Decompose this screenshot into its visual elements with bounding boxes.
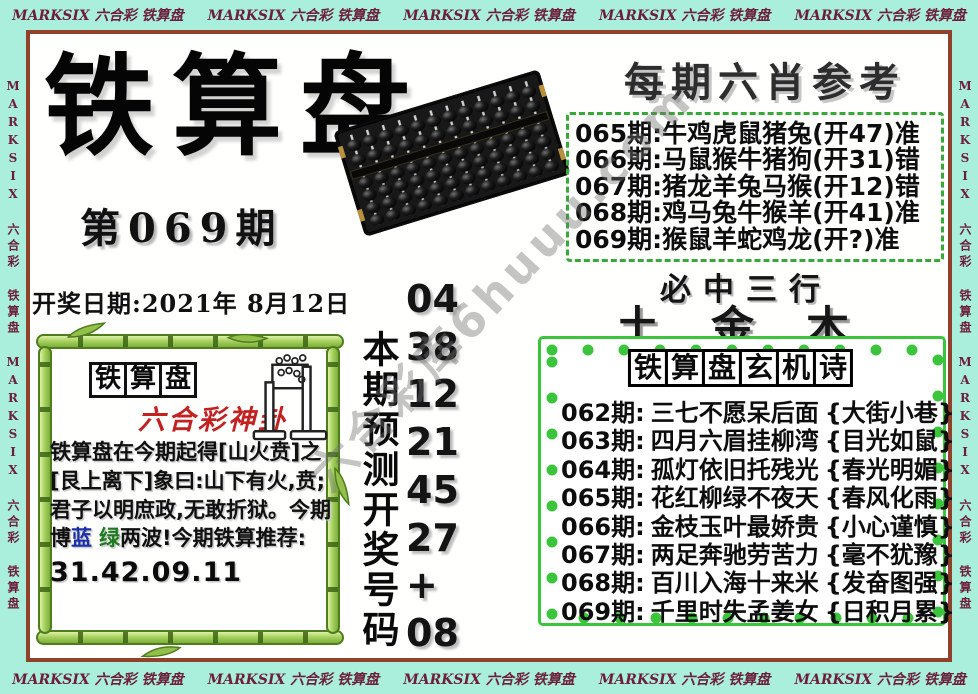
six-xiao-row: 065期:牛鸡虎鼠猪兔(开47)准 <box>575 121 935 147</box>
poem-title-char: 盘 <box>702 349 742 387</box>
banner-text: MARKSIX 六合彩 铁算盘 <box>403 5 574 25</box>
banner-text: MARKSIX 六合彩 铁算盘 <box>958 79 972 337</box>
draw-date: 开奖日期:2021年 8月12日 <box>32 284 350 319</box>
predicted-number: 38 <box>406 328 478 366</box>
green-wave-word: 绿 <box>99 526 120 550</box>
poem-hint: {发奋图强} <box>825 569 955 597</box>
standing-abacus-icon <box>246 348 334 448</box>
poem-title-char: 诗 <box>813 349 853 387</box>
predicted-number: 12 <box>406 375 478 413</box>
banner-text: MARKSIX 六合彩 铁算盘 <box>794 669 965 689</box>
six-xiao-row: 067期:猪龙羊兔马猴(开12)错 <box>575 174 935 200</box>
poem-row: 062期: 三七不愿呆后面 {大街小巷} <box>561 399 927 427</box>
banner-text: MARKSIX 六合彩 铁算盘 <box>599 669 770 689</box>
poem-rows: 062期: 三七不愿呆后面 {大街小巷} 063期: 四月六眉挂柳湾 {目光如鼠… <box>561 399 927 626</box>
poem-row: 069期: 千里时失孟姜女 {日积月累} <box>561 598 927 626</box>
six-xiao-row: 068期:鸡马兔牛猴羊(开41)准 <box>575 200 935 226</box>
poem-title-char: 算 <box>665 349 705 387</box>
bamboo-title-char: 铁 <box>89 362 127 398</box>
predicted-number: 21 <box>406 423 478 461</box>
banner-text: MARKSIX 六合彩 铁算盘 <box>794 5 965 25</box>
poem-verse: 三七不愿呆后面 <box>651 399 819 427</box>
plus-sign: + <box>406 566 478 604</box>
bamboo-box-body: 铁算盘在今期起得[山火贲]之[艮上离下]象曰:山下有火,贲;君子以明庶政,无敢折… <box>50 438 338 592</box>
bamboo-leaf-icon <box>139 639 182 660</box>
poem-period: 065期: <box>561 484 645 512</box>
poem-period: 062期: <box>561 399 645 427</box>
predicted-number: 04 <box>406 280 478 318</box>
poem-hint: {大街小巷} <box>825 399 955 427</box>
predicted-number: 27 <box>406 519 478 557</box>
hexagram-text: 两波!今期铁算推荐: <box>120 526 306 550</box>
poem-row: 067期: 两足奔驰劳苦力 {毫不犹豫} <box>561 541 927 569</box>
poem-period: 069期: <box>561 598 645 626</box>
banner-text: MARKSIX 六合彩 铁算盘 <box>208 5 379 25</box>
poem-row: 063期: 四月六眉挂柳湾 {目光如鼠} <box>561 427 927 455</box>
poem-period: 066期: <box>561 513 645 541</box>
lottery-flyer-page: MARKSIX 六合彩 铁算盘 MARKSIX 六合彩 铁算盘 MARKSIX … <box>0 0 978 694</box>
poem-title-char: 铁 <box>628 349 668 387</box>
bamboo-frame-bottom <box>36 630 344 645</box>
poem-hint: {春光明媚} <box>825 456 955 484</box>
banner-left: MARKSIX 六合彩 铁算盘 MARKSIX 六合彩 铁算盘 <box>0 30 26 662</box>
banner-right: MARKSIX 六合彩 铁算盘 MARKSIX 六合彩 铁算盘 <box>952 30 978 662</box>
six-xiao-row: 066期:马鼠猴牛猪狗(开31)错 <box>575 147 935 173</box>
prediction-label: 本期预测开奖号码 <box>350 330 404 656</box>
banner-text: MARKSIX 六合彩 铁算盘 <box>599 5 770 25</box>
poem-row: 068期: 百川入海十来米 {发奋图强} <box>561 569 927 597</box>
bamboo-box-title: 铁 算 盘 <box>92 362 197 398</box>
poem-hint: {小心谨慎} <box>825 513 955 541</box>
six-xiao-box: 065期:牛鸡虎鼠猪兔(开47)准 066期:马鼠猴牛猪狗(开31)错 067期… <box>566 112 944 262</box>
poem-hint: {目光如鼠} <box>825 427 955 455</box>
poem-verse: 孤灯依旧托残光 <box>651 456 819 484</box>
poem-verse: 花红柳绿不夜天 <box>651 484 819 512</box>
poem-period: 068期: <box>561 569 645 597</box>
poem-verse: 百川入海十来米 <box>651 569 819 597</box>
poem-verse: 两足奔驰劳苦力 <box>651 541 819 569</box>
recommended-numbers: 31.42.09.11 <box>50 555 338 592</box>
poem-row: 065期: 花红柳绿不夜天 {春风化雨} <box>561 484 927 512</box>
poem-title-char: 机 <box>776 349 816 387</box>
issue-number: 第069期 <box>80 196 284 254</box>
banner-text: MARKSIX 六合彩 铁算盘 <box>958 355 972 613</box>
poem-period: 064期: <box>561 456 645 484</box>
poem-verse: 金枝玉叶最娇贵 <box>651 513 819 541</box>
mystery-poem-title: 铁 算 盘 玄 机 诗 <box>631 349 853 387</box>
poem-row: 064期: 孤灯依旧托残光 {春光明媚} <box>561 456 927 484</box>
banner-text: MARKSIX 六合彩 铁算盘 <box>208 669 379 689</box>
poem-period: 067期: <box>561 541 645 569</box>
poem-hint: {毫不犹豫} <box>825 541 955 569</box>
mystery-poem-box: 铁 算 盘 玄 机 诗 062期: 三七不愿呆后面 {大街小巷} 063期: 四… <box>538 336 946 626</box>
six-xiao-row: 069期:猴鼠羊蛇鸡龙(开?)准 <box>575 227 935 253</box>
predicted-number: 45 <box>406 471 478 509</box>
blue-wave-word: 蓝 <box>71 526 92 550</box>
poem-hint: {春风化雨} <box>825 484 955 512</box>
banner-text: MARKSIX 六合彩 铁算盘 <box>6 355 20 613</box>
banner-text: MARKSIX 六合彩 铁算盘 <box>12 5 183 25</box>
poem-row: 066期: 金枝玉叶最娇贵 {小心谨慎} <box>561 513 927 541</box>
banner-bottom: MARKSIX 六合彩 铁算盘 MARKSIX 六合彩 铁算盘 MARKSIX … <box>0 664 978 694</box>
bamboo-title-char: 盘 <box>159 362 197 398</box>
poem-hint: {日积月累} <box>825 598 955 626</box>
predicted-number: 08 <box>406 614 478 652</box>
banner-top: MARKSIX 六合彩 铁算盘 MARKSIX 六合彩 铁算盘 MARKSIX … <box>0 0 978 30</box>
bamboo-title-char: 算 <box>124 362 162 398</box>
banner-text: MARKSIX 六合彩 铁算盘 <box>6 79 20 337</box>
six-xiao-title: 每期六肖参考 <box>600 50 930 108</box>
banner-text: MARKSIX 六合彩 铁算盘 <box>403 669 574 689</box>
poem-period: 063期: <box>561 427 645 455</box>
poem-title-char: 玄 <box>739 349 779 387</box>
banner-text: MARKSIX 六合彩 铁算盘 <box>12 669 183 689</box>
prediction-numbers: 04 38 12 21 45 27 + 08 <box>406 280 478 652</box>
poem-verse: 千里时失孟姜女 <box>651 598 819 626</box>
poem-verse: 四月六眉挂柳湾 <box>651 427 819 455</box>
